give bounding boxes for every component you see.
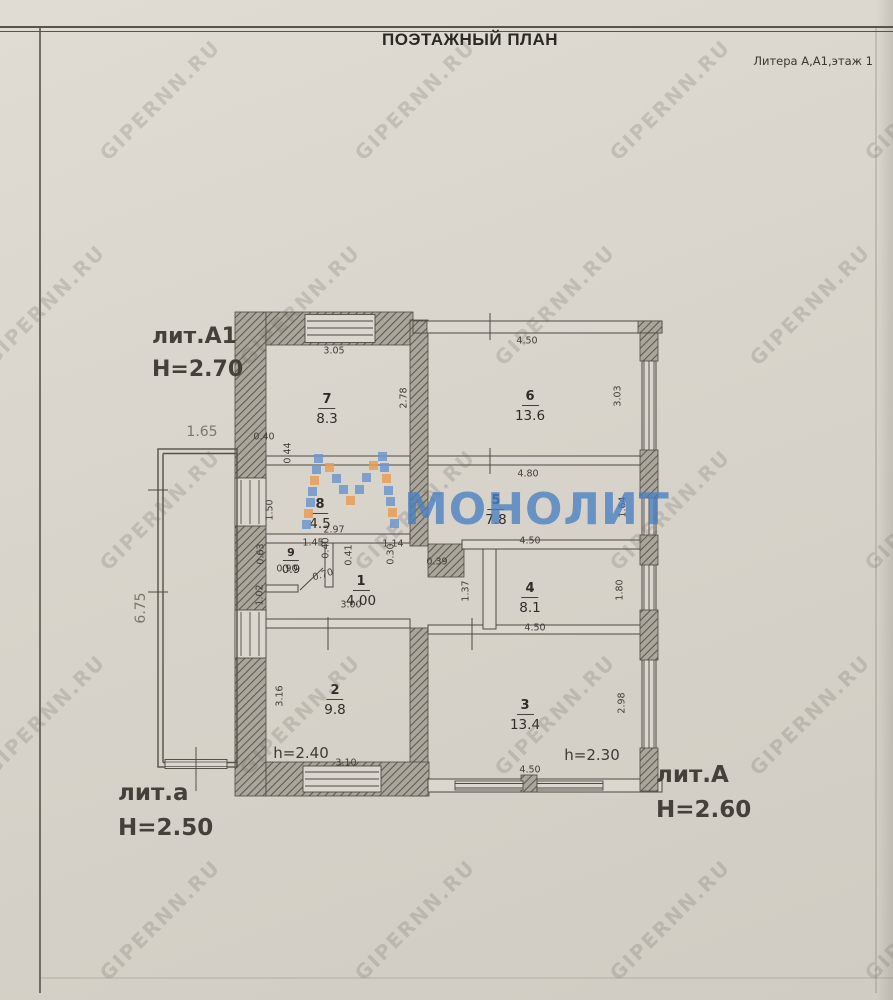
dim-r9-w1: 0.40: [321, 537, 332, 558]
plan-text-layer: ПОЭТАЖНЫЙ ПЛАН Литера А,А1,этаж 1 лит.А1…: [0, 0, 893, 1000]
page-title: ПОЭТАЖНЫЙ ПЛАН: [382, 30, 558, 50]
dim-window-height: 0.44: [283, 442, 294, 463]
room-4-label: 4 8.1: [519, 577, 540, 616]
room-6-number: 6: [521, 389, 538, 406]
room-5-number: 5: [487, 493, 504, 510]
block-label-a-small: лит.а Н=2.50: [118, 776, 213, 845]
scan-edge-shadow: [877, 0, 893, 1000]
block-a-name: лит.А: [656, 758, 751, 793]
dim-r6-top: 4.50: [516, 336, 537, 347]
dim-r5-bottom: 4.50: [519, 536, 540, 547]
room-2-area: 9.8: [324, 702, 345, 718]
dim-r2-left: 3.16: [275, 685, 286, 706]
dim-r9-w2: 0.41: [344, 544, 355, 565]
room-4-number: 4: [521, 581, 538, 598]
room-5-label: 5 7.8: [485, 489, 506, 528]
dim-r8-left: 1.50: [265, 499, 276, 520]
dim-r1-left: 1.02: [255, 584, 266, 605]
room-8-number: 8: [311, 497, 328, 514]
height-note-r2: h=2.40: [273, 744, 328, 762]
dim-r5-top: 4.80: [517, 469, 538, 480]
litera-note: Литера А,А1,этаж 1: [753, 54, 873, 68]
dim-r7-right: 2.78: [399, 387, 410, 408]
height-note-r3: h=2.30: [564, 746, 619, 764]
dim-window-width: 0.40: [253, 432, 274, 443]
dim-r4-bottom: 4.50: [524, 623, 545, 634]
room-9-number: 9: [283, 546, 299, 561]
room-5-area: 7.8: [485, 512, 506, 528]
block-a-small-height: Н=2.50: [118, 811, 213, 846]
block-a1-height: Н=2.70: [152, 353, 243, 386]
room-1-number: 1: [352, 574, 369, 591]
room-4-area: 8.1: [519, 600, 540, 616]
block-a-height: Н=2.60: [656, 793, 751, 828]
dim-r1-w: 0.30: [386, 543, 397, 564]
room-8-area: 4.5: [309, 516, 330, 532]
room-3-area: 13.4: [510, 717, 540, 733]
dim-r2-bottom: 3.10: [335, 758, 356, 769]
room-1-label: 1 4.00: [346, 570, 376, 609]
room-2-number: 2: [326, 683, 343, 700]
room-9-label: 9 0.9: [282, 541, 300, 576]
dim-annex-top: 1.65: [186, 424, 217, 440]
block-a1-name: лит.А1: [152, 320, 243, 353]
dim-r3-right: 2.98: [617, 692, 628, 713]
room-7-area: 8.3: [316, 411, 337, 427]
dim-r1-right: 1.37: [461, 580, 472, 601]
dim-annex-left: 6.75: [133, 592, 149, 623]
dim-r9-left: 0.63: [256, 543, 267, 564]
block-a-small-name: лит.а: [118, 776, 213, 811]
scanned-floor-plan-page: ПОЭТАЖНЫЙ ПЛАН Литера А,А1,этаж 1 лит.А1…: [0, 0, 893, 1000]
room-6-label: 6 13.6: [515, 385, 545, 424]
dim-r6-right: 3.03: [613, 385, 624, 406]
dim-r5-right: 1.64: [618, 496, 629, 517]
room-3-number: 3: [516, 698, 533, 715]
room-6-area: 13.6: [515, 408, 545, 424]
room-9-area: 0.9: [282, 562, 300, 576]
block-label-a: лит.А Н=2.60: [656, 758, 751, 827]
dim-r7-top: 3.05: [323, 346, 344, 357]
dim-r4-right: 1.80: [615, 579, 626, 600]
dim-r9-door: 0.70: [311, 567, 334, 583]
dim-r3-bottom: 4.50: [519, 765, 540, 776]
room-7-number: 7: [318, 392, 335, 409]
block-label-a1: лит.А1 Н=2.70: [152, 320, 243, 386]
room-7-label: 7 8.3: [316, 388, 337, 427]
room-8-label: 8 4.5: [309, 493, 330, 532]
dim-r1-niche: 0.39: [426, 557, 447, 568]
room-1-area: 4.00: [346, 593, 376, 609]
room-2-label: 2 9.8: [324, 679, 345, 718]
room-3-label: 3 13.4: [510, 694, 540, 733]
